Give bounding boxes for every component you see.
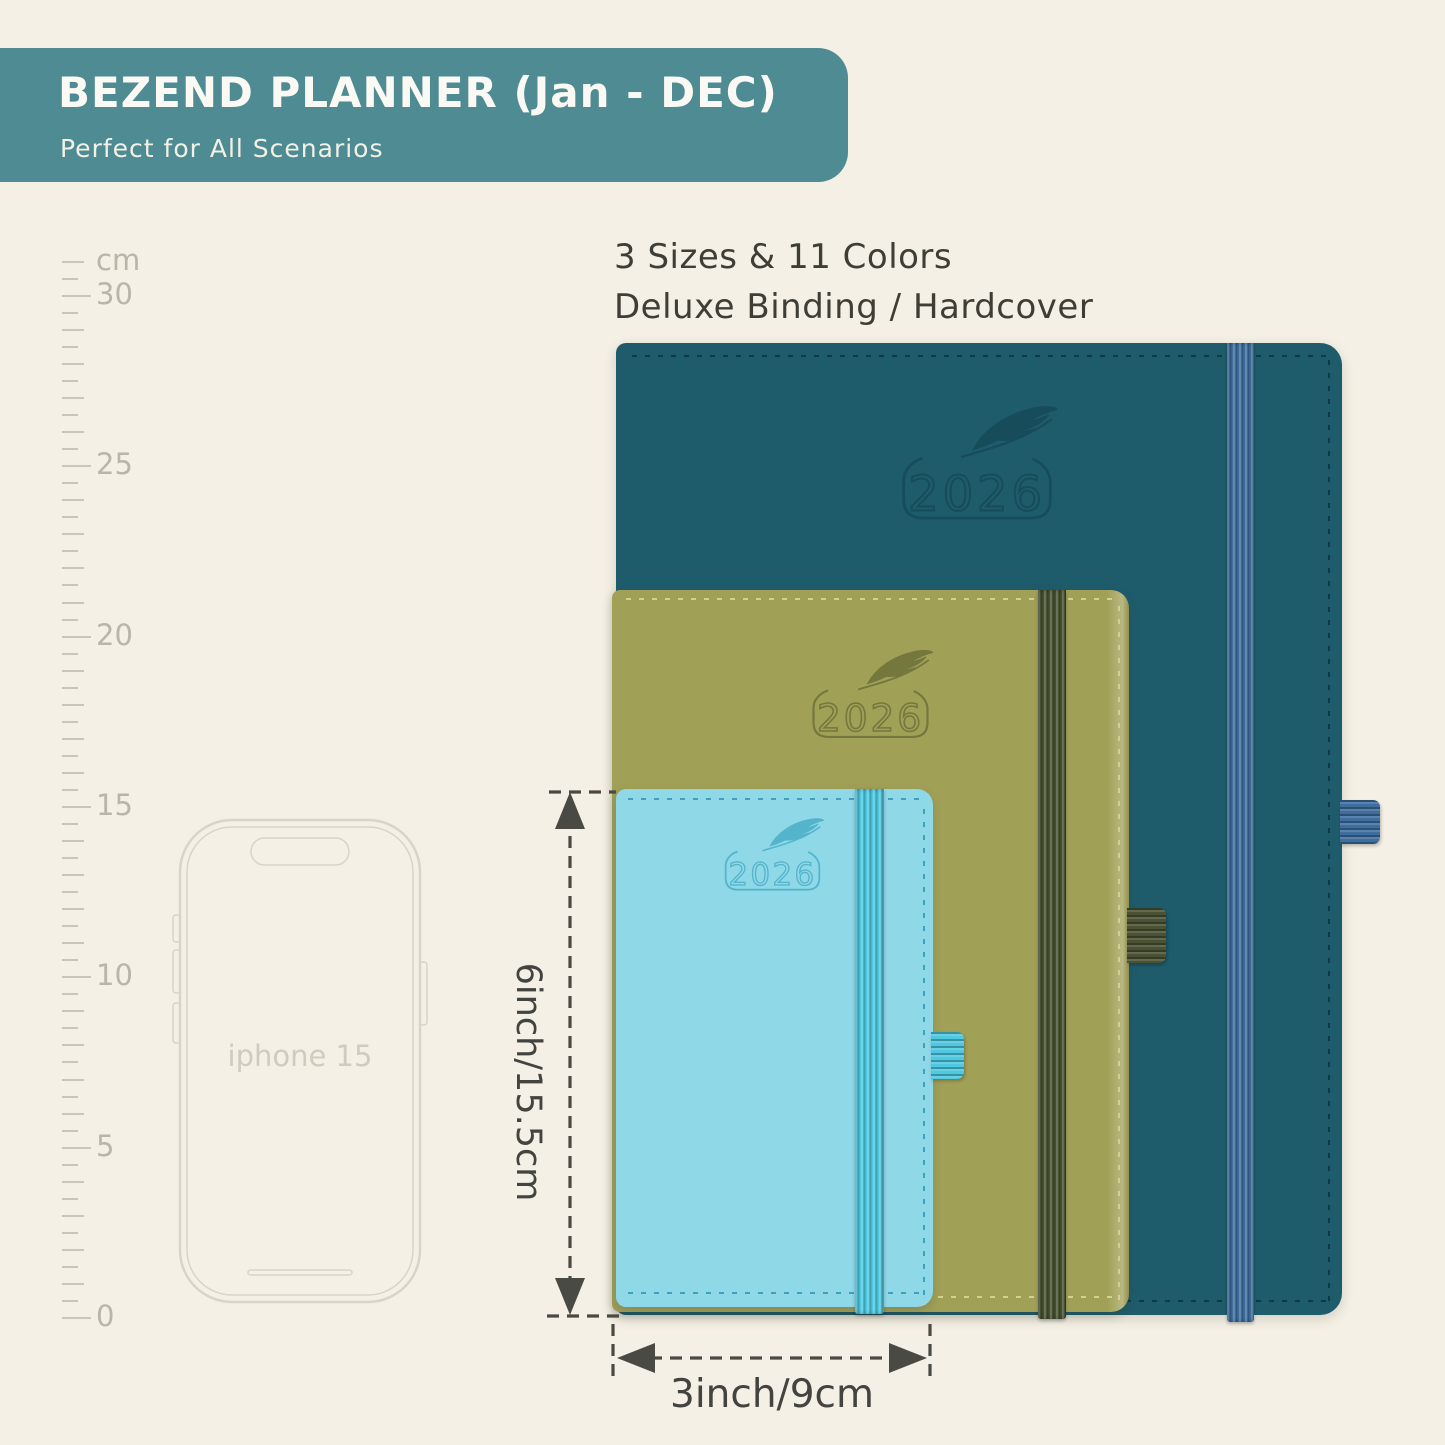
width-dimension-label: 3inch/9cm <box>612 1372 932 1417</box>
dimension-lines <box>0 0 1445 1445</box>
height-dimension-label: 6inch/15.5cm <box>508 842 548 1322</box>
arrowhead-right <box>889 1343 927 1373</box>
arrowhead-left <box>617 1343 655 1373</box>
arrowhead-up <box>555 792 585 829</box>
arrowhead-down <box>555 1278 585 1315</box>
product-image: BEZEND PLANNER (Jan - DEC) Perfect for A… <box>0 0 1445 1445</box>
